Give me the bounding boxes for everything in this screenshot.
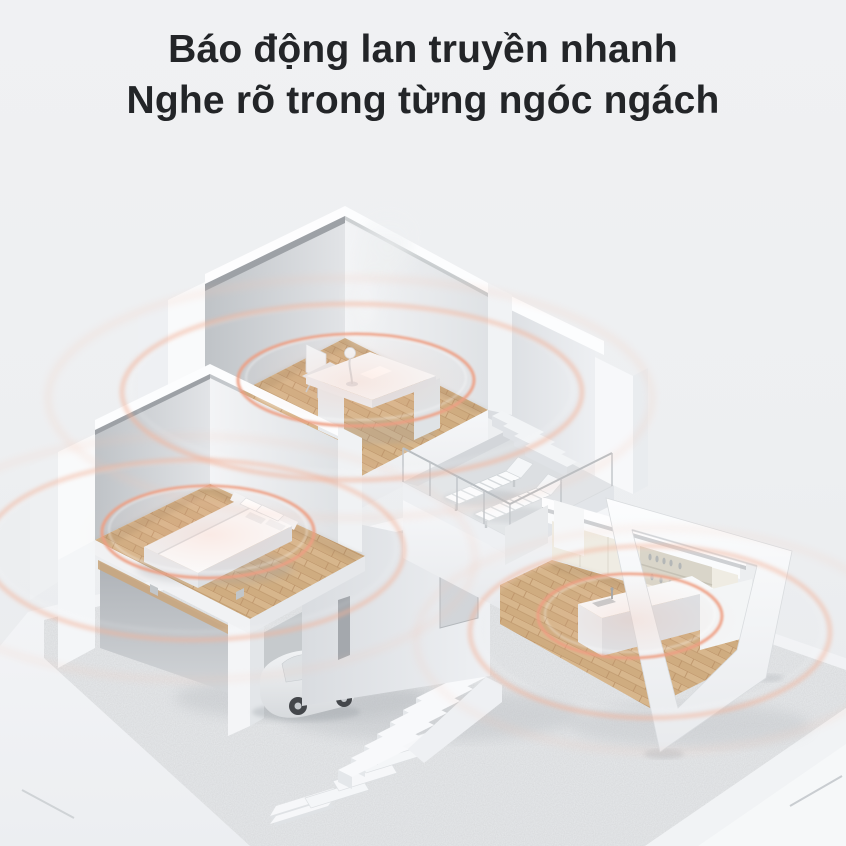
study-right-pillar: [488, 283, 512, 415]
tall-cabinet: [554, 500, 584, 556]
headline-line-1: Báo động lan truyền nhanh: [0, 24, 846, 75]
headline: Báo động lan truyền nhanh Nghe rõ trong …: [0, 24, 846, 127]
car-wheel-rear-hub: [295, 703, 302, 710]
bedroom-outer-wall-side: [30, 452, 58, 600]
poster: Báo động lan truyền nhanh Nghe rõ trong …: [0, 0, 846, 846]
headline-line-2: Nghe rõ trong từng ngóc ngách: [0, 75, 846, 126]
